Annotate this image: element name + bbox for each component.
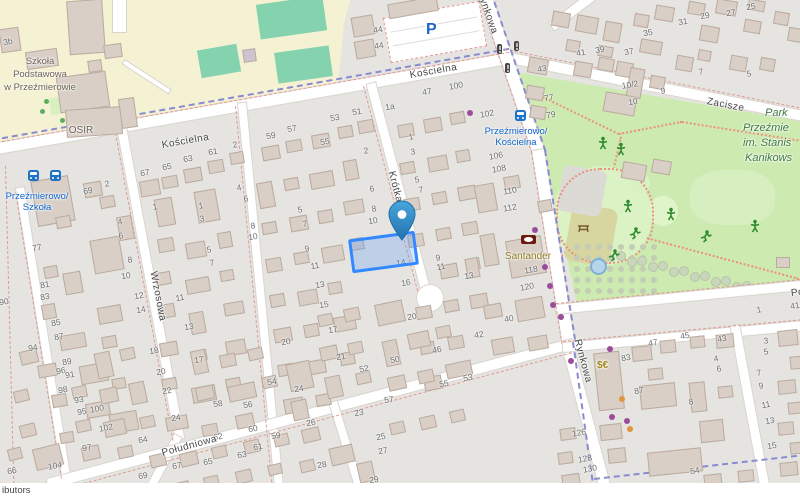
street-name-label: Południowa [161,434,219,459]
street-name-label: Wrzosowa [148,270,168,322]
bus-stop-icon [515,110,526,121]
parking-icon: P [426,21,437,39]
attribution-bar: ibutors [0,483,800,500]
map-canvas[interactable]: 3b4444100471a102143777941393735312927251… [0,0,800,500]
bus-stop-icon [50,170,61,181]
map-marker-icon[interactable] [388,201,416,241]
bus-stop-label: Przeźmierowo/Szkoła [0,191,97,213]
street-name-label: Rynkowa [572,338,594,384]
school-name-label: SzkołaPodstawowaw Przeźmierowie [0,55,100,94]
park-name-label: im. Stanis [743,136,791,151]
park-name-label: Park [765,106,788,121]
street-name-label: Kościelna [161,132,210,151]
osir-label: OSIR [61,124,101,137]
street-name-label: Zacisze [706,96,745,114]
park-name-label: Kanikows [745,151,792,166]
street-name-label: Południowa [790,282,800,299]
street-name-label: Rynkowa [475,0,500,35]
bus-stop-label: Przeźmierowo/Kościelna [456,126,576,148]
street-name-label: Krótka [386,170,405,204]
park-name-label: Przeźmie [743,121,789,136]
attribution-link[interactable]: ibutors [2,485,31,496]
currency-exchange-icon: $€ [597,360,608,371]
santander-label: Santander [468,251,588,262]
street-name-label: Kościelna [409,62,458,81]
bus-stop-icon [28,170,39,181]
